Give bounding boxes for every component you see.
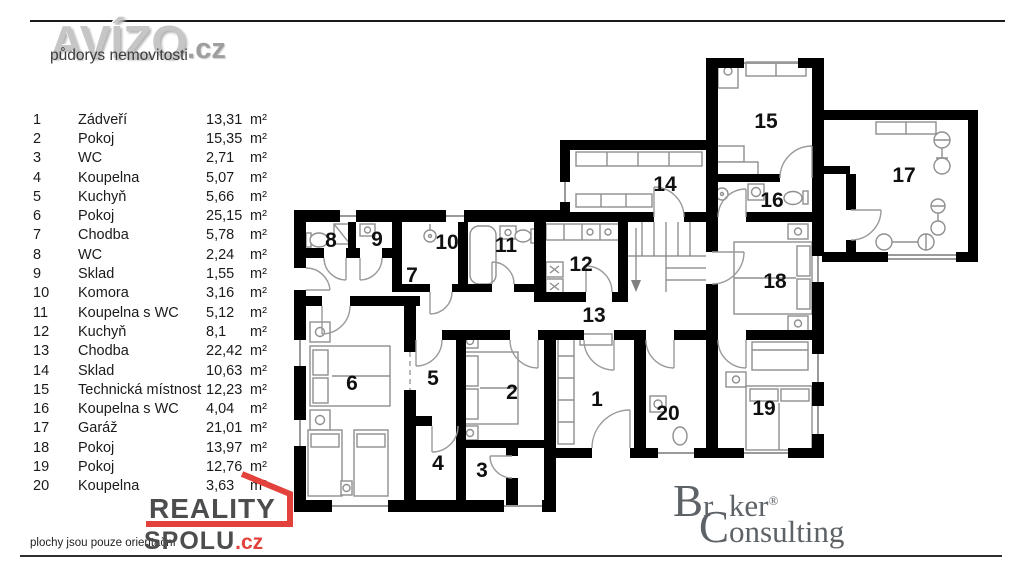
reality-logo-tld: .cz <box>235 531 263 554</box>
room-label-20: 20 <box>656 402 679 425</box>
room-area-unit: m² <box>250 305 267 321</box>
room-area-unit: m² <box>250 170 267 186</box>
legend-row: 13 Chodba 22,42 m² <box>33 342 285 361</box>
legend-row: 14 Sklad 10,63 m² <box>33 361 285 380</box>
room-area: 4,04 <box>206 401 250 417</box>
room-number: 11 <box>33 305 78 321</box>
room-area: 25,15 <box>206 208 250 224</box>
room-number: 19 <box>33 459 78 475</box>
room-area-unit: m² <box>250 247 267 263</box>
room-label-14: 14 <box>653 173 677 196</box>
room-number: 1 <box>33 112 78 128</box>
room-number: 13 <box>33 343 78 359</box>
room-label-3: 3 <box>476 459 488 482</box>
room-area: 21,01 <box>206 420 250 436</box>
room-label-9: 9 <box>371 228 383 251</box>
room-name: Pokoj <box>78 208 206 224</box>
reality-spolu-logo: REALITY SPOLU.cz <box>142 466 342 570</box>
legend-row: 18 Pokoj 13,97 m² <box>33 438 285 457</box>
legend-row: 3 WC 2,71 m² <box>33 149 285 168</box>
room-number: 3 <box>33 150 78 166</box>
room-label-17: 17 <box>892 164 915 187</box>
room-area-unit: m² <box>250 227 267 243</box>
room-number: 16 <box>33 401 78 417</box>
room-label-18: 18 <box>763 270 787 293</box>
legend-row: 2 Pokoj 15,35 m² <box>33 129 285 148</box>
room-name: Zádveří <box>78 112 206 128</box>
room-area-unit: m² <box>250 208 267 224</box>
room-label-8: 8 <box>325 229 337 252</box>
legend-list: 1 Zádveří 13,31 m² 2 Pokoj 15,35 m² 3 WC… <box>33 110 285 496</box>
room-number: 6 <box>33 208 78 224</box>
room-number: 18 <box>33 440 78 456</box>
broker-consulting-logo: Broker® Consulting <box>673 486 844 547</box>
legend-row: 11 Koupelna s WC 5,12 m² <box>33 303 285 322</box>
legend-row: 15 Technická místnost 12,23 m² <box>33 380 285 399</box>
room-area: 13,31 <box>206 112 250 128</box>
furniture-room-19 <box>726 342 812 450</box>
legend-row: 1 Zádveří 13,31 m² <box>33 110 285 129</box>
room-area-unit: m² <box>250 420 267 436</box>
room-number: 4 <box>33 170 78 186</box>
legend-row: 12 Kuchyň 8,1 m² <box>33 322 285 341</box>
room-name: WC <box>78 150 206 166</box>
room-number: 8 <box>33 247 78 263</box>
legend-row: 16 Koupelna s WC 4,04 m² <box>33 399 285 418</box>
legend-row: 6 Pokoj 25,15 m² <box>33 206 285 225</box>
room-name: Komora <box>78 285 206 301</box>
room-label-1: 1 <box>591 388 603 411</box>
room-label-19: 19 <box>752 397 775 420</box>
registered-mark: ® <box>768 493 778 508</box>
reality-logo-spolu: SPOLU <box>144 527 235 555</box>
room-label-13: 13 <box>582 304 605 327</box>
room-name: Kuchyň <box>78 324 206 340</box>
legend-row: 5 Kuchyň 5,66 m² <box>33 187 285 206</box>
room-area: 12,23 <box>206 382 250 398</box>
legend-row: 4 Koupelna 5,07 m² <box>33 168 285 187</box>
room-name: Koupelna s WC <box>78 401 206 417</box>
room-area-unit: m² <box>250 363 267 379</box>
room-label-16: 16 <box>760 189 783 212</box>
room-area-unit: m² <box>250 131 267 147</box>
room-label-12: 12 <box>569 253 592 276</box>
room-label-11: 11 <box>495 234 518 257</box>
room-number: 12 <box>33 324 78 340</box>
room-name: Chodba <box>78 227 206 243</box>
reality-logo-line2: SPOLU.cz <box>144 529 263 554</box>
room-area-unit: m² <box>250 189 267 205</box>
room-number: 20 <box>33 478 78 494</box>
room-area: 5,78 <box>206 227 250 243</box>
room-number: 17 <box>33 420 78 436</box>
room-name: Sklad <box>78 266 206 282</box>
avizo-tld: .cz <box>187 33 226 65</box>
room-area-unit: m² <box>250 401 267 417</box>
room-number: 10 <box>33 285 78 301</box>
broker-logo-line2: Consulting <box>699 512 844 547</box>
room-name: Technická místnost <box>78 382 206 398</box>
room-area: 22,42 <box>206 343 250 359</box>
room-area: 2,71 <box>206 150 250 166</box>
room-number: 2 <box>33 131 78 147</box>
avizo-logo: AVÍZO.cz půdorys nemovitosti <box>50 22 226 66</box>
room-name: Koupelna s WC <box>78 305 206 321</box>
room-area-unit: m² <box>250 285 267 301</box>
staircase <box>628 222 706 292</box>
room-name: Pokoj <box>78 440 206 456</box>
room-area: 10,63 <box>206 363 250 379</box>
legend-row: 7 Chodba 5,78 m² <box>33 226 285 245</box>
room-area-unit: m² <box>250 150 267 166</box>
room-number: 14 <box>33 363 78 379</box>
furniture-room-1 <box>558 334 612 444</box>
room-label-5: 5 <box>427 367 439 390</box>
room-area: 5,07 <box>206 170 250 186</box>
furniture-room-10 <box>424 224 436 242</box>
room-area-unit: m² <box>250 440 267 456</box>
legend-row: 9 Sklad 1,55 m² <box>33 264 285 283</box>
legend-row: 17 Garáž 21,01 m² <box>33 419 285 438</box>
room-name: Sklad <box>78 363 206 379</box>
legend-row: 8 WC 2,24 m² <box>33 245 285 264</box>
room-name: Pokoj <box>78 131 206 147</box>
floor-plan: 1 2 3 4 5 6 7 8 9 10 11 12 13 14 15 16 1… <box>290 50 990 518</box>
room-area: 5,12 <box>206 305 250 321</box>
room-name: Kuchyň <box>78 189 206 205</box>
room-name: Chodba <box>78 343 206 359</box>
room-area: 1,55 <box>206 266 250 282</box>
room-number: 9 <box>33 266 78 282</box>
room-area-unit: m² <box>250 382 267 398</box>
room-name: Koupelna <box>78 170 206 186</box>
room-area: 3,16 <box>206 285 250 301</box>
room-label-7: 7 <box>406 264 418 287</box>
room-label-4: 4 <box>432 452 444 475</box>
avizo-subtitle: půdorys nemovitosti <box>50 47 188 65</box>
room-number: 5 <box>33 189 78 205</box>
room-area-unit: m² <box>250 324 267 340</box>
room-label-10: 10 <box>435 231 458 254</box>
room-number: 7 <box>33 227 78 243</box>
broker-c-rest: onsulting <box>729 514 844 549</box>
room-area-unit: m² <box>250 266 267 282</box>
room-area: 5,66 <box>206 189 250 205</box>
room-area: 2,24 <box>206 247 250 263</box>
room-area: 8,1 <box>206 324 250 340</box>
room-name: Garáž <box>78 420 206 436</box>
broker-cap-c: C <box>699 502 729 552</box>
furniture-room-14 <box>576 152 702 207</box>
room-area: 15,35 <box>206 131 250 147</box>
room-number: 15 <box>33 382 78 398</box>
room-label-6: 6 <box>346 372 358 395</box>
room-area: 13,97 <box>206 440 250 456</box>
room-area-unit: m² <box>250 343 267 359</box>
room-name: WC <box>78 247 206 263</box>
room-area-unit: m² <box>250 112 267 128</box>
reality-logo-line1: REALITY <box>149 495 276 523</box>
room-label-2: 2 <box>506 381 518 404</box>
legend-row: 10 Komora 3,16 m² <box>33 284 285 303</box>
room-label-15: 15 <box>754 110 778 133</box>
